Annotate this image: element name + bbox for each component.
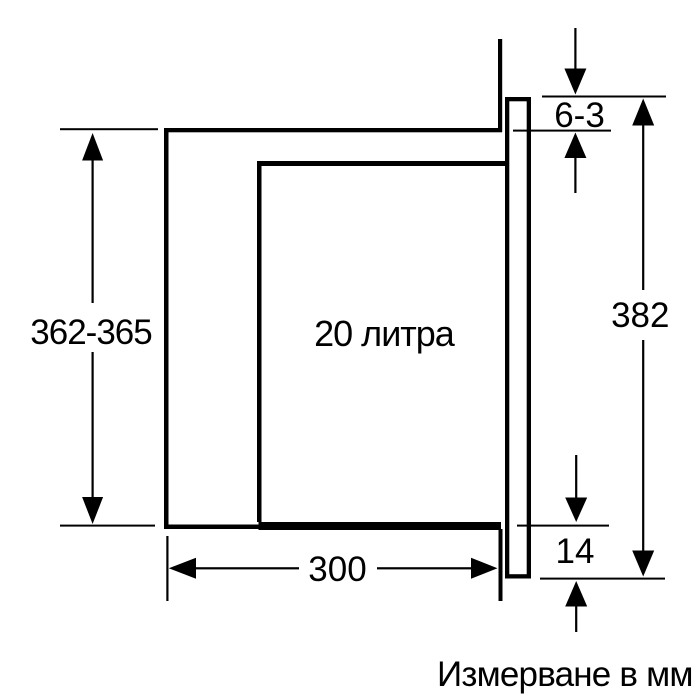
svg-text:20 литра: 20 литра [314, 313, 456, 354]
svg-text:300: 300 [308, 550, 366, 589]
svg-text:362-365: 362-365 [30, 313, 151, 352]
svg-text:Измерване в мм: Измерване в мм [437, 655, 693, 694]
svg-text:6-3: 6-3 [554, 96, 605, 135]
svg-text:382: 382 [611, 296, 669, 335]
svg-text:14: 14 [556, 532, 595, 571]
